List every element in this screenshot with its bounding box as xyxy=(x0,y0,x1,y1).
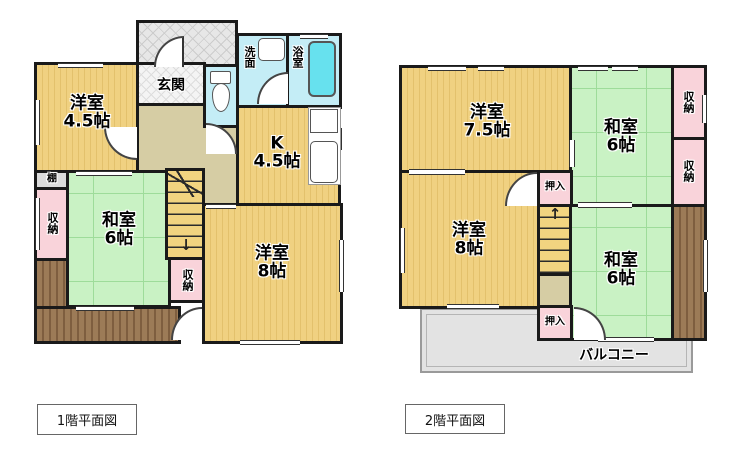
room-label-oshiire-south: 押入 xyxy=(545,318,565,329)
room-label-closet-mid: 収納 xyxy=(682,160,694,182)
room-label-western45: 洋室4.5帖 xyxy=(63,95,110,132)
kitchen-sink-icon xyxy=(310,141,338,183)
room-label-japanese6-south: 和室6帖 xyxy=(604,252,638,289)
floorplan-canvas: 洋室4.5帖 玄関 洗面 浴室 K4.5帖 和室6帖 洋室8帖 棚 収納 収納 xyxy=(0,0,740,460)
window-west45-top xyxy=(58,63,103,68)
floor1-caption: 1階平面図 xyxy=(37,404,137,435)
window-west75-top-2 xyxy=(478,66,504,71)
entry-porch xyxy=(136,20,238,68)
window-corridor-right xyxy=(703,240,708,292)
corridor-east-2f xyxy=(671,204,707,341)
room-label-shelf: 棚 xyxy=(47,175,57,186)
window-west8-left-2f xyxy=(400,228,405,273)
room-label-oshiire-north: 押入 xyxy=(545,183,565,194)
window-closet-right xyxy=(702,95,707,123)
room-label-balcony: バルコニー xyxy=(579,348,649,363)
room-label-japanese6-north: 和室6帖 xyxy=(604,119,638,156)
stove-icon xyxy=(310,109,338,133)
window-west8-bottom xyxy=(240,340,300,345)
floor1-hallway xyxy=(138,104,204,172)
washbasin-icon xyxy=(258,38,285,61)
room-label-closet-stairs: 収納 xyxy=(181,269,193,291)
room-label-western8-2f: 洋室8帖 xyxy=(452,222,486,259)
window-closet-left xyxy=(35,198,40,250)
window-japanese6n-top-2 xyxy=(612,66,638,71)
room-label-closet-west: 収納 xyxy=(46,212,58,234)
opening-west8-top xyxy=(206,204,236,209)
stairs-up-arrow-icon: ↑ xyxy=(549,205,562,223)
room-label-entrance: 玄関 xyxy=(157,78,185,93)
floor2-caption: 2階平面図 xyxy=(405,404,505,434)
room-label-washstand: 洗面 xyxy=(243,46,255,68)
sliding-door-japanese6-n-s xyxy=(578,202,632,208)
veranda-west xyxy=(34,258,69,309)
window-west45-left xyxy=(35,100,40,145)
sliding-door-west75-west8 xyxy=(409,169,465,175)
sliding-door-west75-japanese6 xyxy=(569,140,575,167)
window-west75-top-1 xyxy=(428,66,466,71)
window-bath-top xyxy=(300,34,328,39)
veranda-south xyxy=(34,306,181,344)
room-label-japanese6-1f: 和室6帖 xyxy=(102,212,136,249)
window-japanese6n-top-1 xyxy=(578,66,608,71)
room-label-western75: 洋室7.5帖 xyxy=(463,104,510,141)
window-west8-bottom-2f xyxy=(447,304,499,309)
room-label-western8-1f: 洋室8帖 xyxy=(255,245,289,282)
window-west8-right xyxy=(339,240,344,292)
stairs-down-arrow-icon: ↓ xyxy=(180,236,193,254)
bathtub-icon xyxy=(308,41,336,97)
sliding-door-japanese6-south xyxy=(76,306,134,311)
stairs-winder-1f xyxy=(168,171,202,197)
room-label-closet-north: 収納 xyxy=(682,91,694,113)
sliding-door-japanese6-north xyxy=(76,171,132,176)
room-label-kitchen: K4.5帖 xyxy=(253,135,300,172)
room-label-bathroom: 浴室 xyxy=(291,46,303,68)
balcony-door-japanese6s xyxy=(598,337,654,342)
